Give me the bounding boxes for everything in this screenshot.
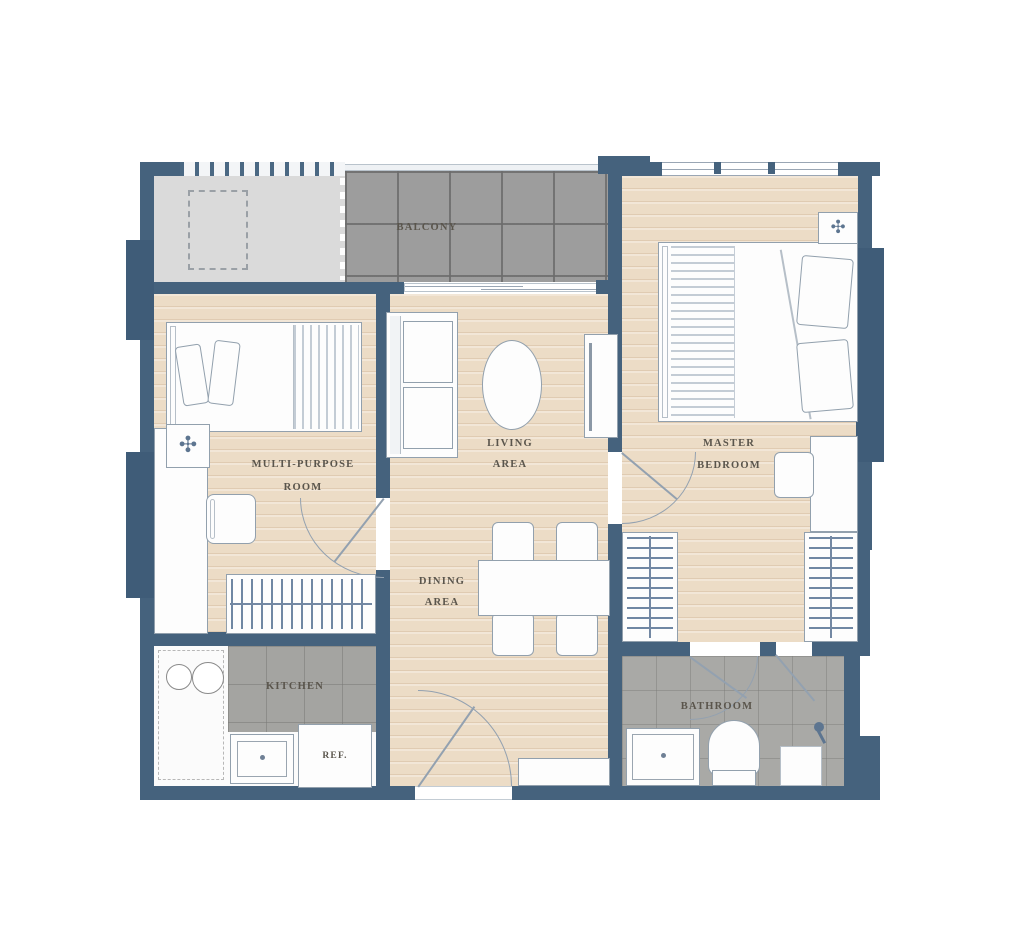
balcony-label: BALCONY — [367, 221, 487, 234]
sofa — [386, 312, 458, 458]
wall-balcony-master — [608, 174, 622, 294]
stove-burner — [192, 662, 224, 694]
master-top-left-stub — [622, 162, 662, 176]
dining-label-line2: AREA — [392, 596, 492, 609]
wall-shower-top — [812, 642, 858, 656]
wall-bathroom-top-stub — [760, 642, 776, 656]
master-bed — [658, 242, 858, 422]
ac-condenser-dashed — [188, 190, 248, 270]
mpr-ac-unit: ✣ — [166, 424, 210, 468]
master-window-mullion — [768, 162, 775, 174]
tv-screen — [589, 343, 592, 431]
tv-console — [584, 334, 618, 438]
sink-faucet — [260, 755, 265, 760]
master-label-line1: MASTER — [669, 437, 789, 450]
dressing-wardrobe-right — [804, 532, 858, 642]
shower-niche — [780, 746, 822, 786]
ac-fan-icon: ✣ — [819, 213, 857, 243]
outer-wall-right-lower — [856, 550, 870, 656]
toilet-tank — [712, 770, 756, 786]
toilet-bowl — [708, 720, 760, 776]
pillow — [796, 255, 854, 329]
sofa-cushion — [403, 321, 453, 383]
mpr-chair-back — [210, 499, 215, 539]
mpr-bed-blanket — [293, 325, 359, 429]
wall-kitchen-entry — [376, 646, 390, 786]
pillow — [174, 343, 209, 406]
mpr-bed-headboard — [170, 326, 176, 428]
living-label-line1: LIVING — [460, 437, 560, 450]
pillow — [207, 340, 241, 407]
sofa-backrest — [390, 316, 401, 454]
dining-chair — [556, 612, 598, 656]
window-left-lower — [126, 452, 154, 598]
master-bed-footboard — [662, 246, 668, 418]
dining-table — [478, 560, 610, 616]
kitchen-sink — [230, 734, 294, 784]
master-ac-unit: ✣ — [818, 212, 858, 244]
window-left-upper — [126, 240, 154, 340]
outer-wall-right-mid — [858, 462, 872, 550]
pillow — [796, 339, 854, 413]
sliding-panel-line — [405, 286, 523, 288]
dressing-wardrobe-left — [622, 532, 678, 642]
entry-shoe-cabinet — [518, 758, 610, 786]
outer-wall-right-upper — [858, 176, 872, 250]
refrigerator: REF. — [298, 724, 372, 788]
master-window-band — [662, 162, 838, 176]
coffee-table — [482, 340, 542, 430]
vanity-faucet — [661, 753, 666, 758]
dressing-desk — [810, 436, 858, 532]
outer-wall-top-right-corner — [838, 162, 880, 176]
floor-plan: ✣ ✣ — [0, 0, 1024, 941]
ac-fan-icon: ✣ — [167, 425, 209, 467]
wardrobe-rail — [230, 603, 372, 605]
wardrobe-rail — [830, 536, 832, 638]
multi-purpose-label-line1: MULTI-PURPOSE — [233, 458, 373, 471]
master-label-line2: BEDROOM — [669, 459, 789, 472]
wall-under-balcony — [154, 282, 404, 294]
master-bed-blanket — [671, 246, 735, 418]
dining-label-line1: DINING — [392, 575, 492, 588]
bathroom-label: BATHROOM — [667, 700, 767, 713]
entrance-threshold — [415, 786, 512, 800]
wardrobe-rail — [649, 536, 651, 638]
balcony-railing — [345, 164, 602, 171]
bathroom-vanity — [626, 728, 700, 786]
living-label-line2: AREA — [460, 458, 560, 471]
window-right-master — [856, 248, 884, 462]
multi-purpose-label-line2: ROOM — [233, 481, 373, 494]
ledge-louver-band — [180, 162, 345, 176]
stove-burner — [166, 664, 192, 690]
master-window-mullion — [714, 162, 721, 174]
dining-chair — [492, 612, 534, 656]
outer-wall-bottom-right — [512, 786, 880, 800]
ac-ledge-floor — [154, 176, 345, 282]
kitchen-label: KITCHEN — [245, 680, 345, 693]
outer-wall-bottom-left — [140, 786, 415, 800]
wall-bathroom-top-left — [608, 642, 690, 656]
wall-bathroom-left — [608, 656, 622, 786]
wall-dining-dressing — [608, 524, 622, 658]
mpr-bed — [166, 322, 362, 432]
sofa-cushion — [403, 387, 453, 449]
refrigerator-label: REF. — [299, 725, 371, 787]
ledge-balcony-divider — [340, 178, 345, 280]
sliding-panel-line — [481, 289, 599, 291]
mpr-chair — [206, 494, 256, 544]
wall-mpr-kitchen — [154, 632, 390, 646]
balcony-sliding-door — [404, 283, 600, 292]
mpr-wardrobe — [226, 574, 376, 634]
